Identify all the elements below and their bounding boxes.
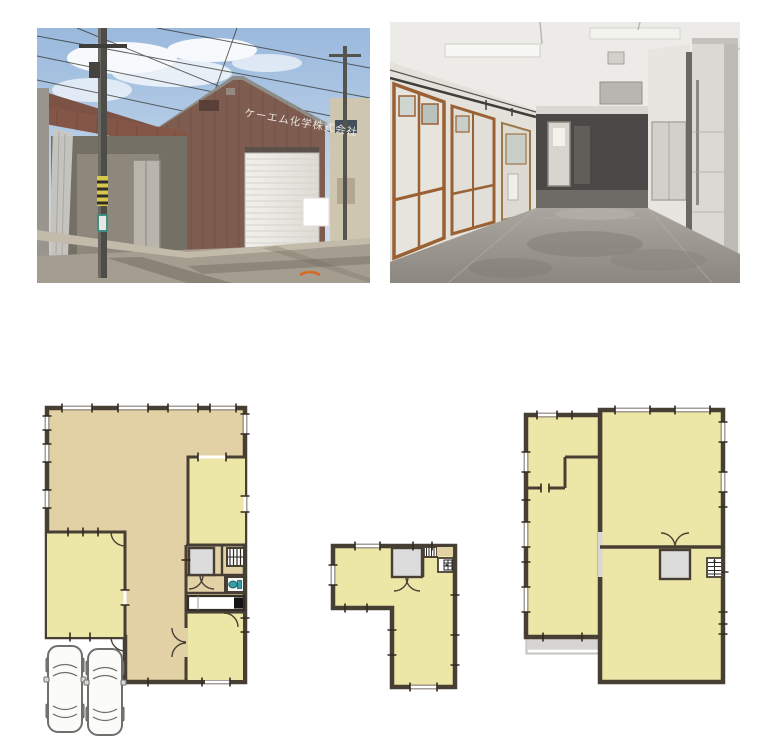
storage-room: [392, 548, 422, 577]
listing-image: ケーエム化学株式会社: [0, 0, 772, 752]
light-fixture: [590, 28, 680, 39]
room-upper-right: [188, 457, 245, 545]
stair-landing: [437, 547, 453, 556]
radiator: [508, 174, 518, 200]
left-section: [526, 415, 600, 637]
toilet-icon: [229, 581, 242, 589]
sink-icon: [438, 558, 453, 572]
toilet-room: [227, 577, 244, 592]
third-floor-plan: [515, 402, 735, 692]
kitchen-counter-icon: [188, 596, 244, 610]
staircase-icon: [227, 548, 244, 566]
vent-unit: [600, 82, 642, 104]
room-lower-right: [188, 614, 243, 680]
light-fixture: [445, 44, 540, 57]
staircase-icon: [707, 558, 729, 577]
staircase-icon: [424, 547, 437, 557]
first-floor-plan: [40, 400, 260, 745]
room-lower-left: [47, 532, 125, 637]
building-exterior-photo: ケーエム化学株式会社: [37, 28, 370, 283]
stove-icon: [234, 598, 243, 609]
wall-opening: [598, 532, 603, 577]
blank-sign-board: [303, 198, 329, 226]
storage-room: [660, 550, 690, 579]
storage-room: [189, 548, 214, 575]
second-floor-plan: [325, 535, 465, 695]
warehouse-interior-photo: [390, 22, 740, 283]
